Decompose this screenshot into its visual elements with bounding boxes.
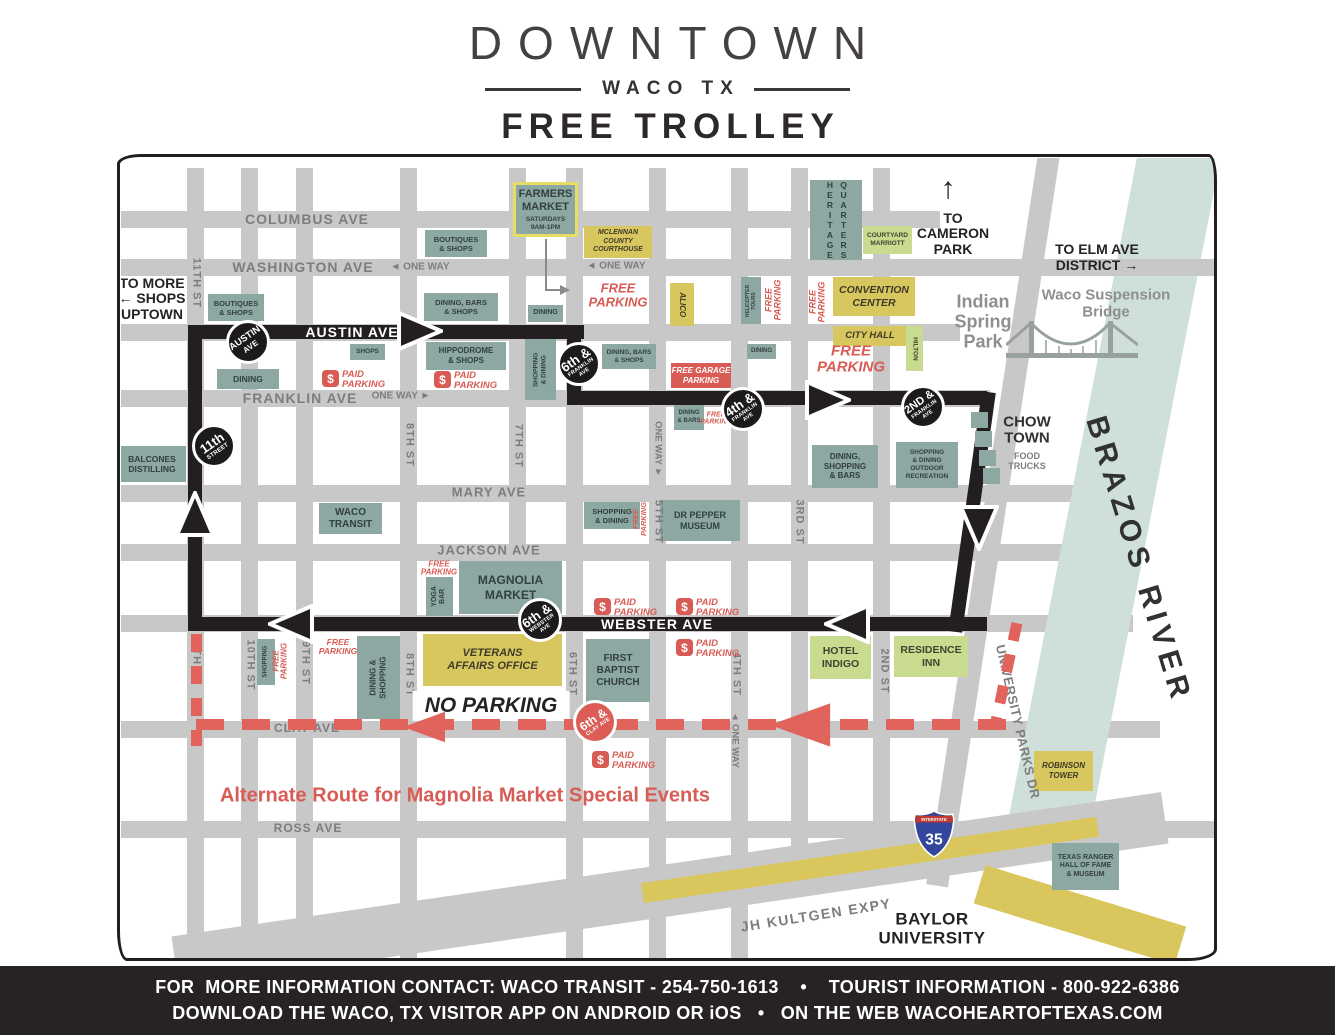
label-one-way: ◄ ONE WAY [587,260,646,272]
paid-parking-label: PAID PARKING [614,598,657,618]
chow-town-square [983,468,1000,484]
label-one-way: ONE WAY ► [372,390,431,402]
paid-parking-marker: $PAID PARKING [322,370,385,390]
header: DOWNTOWN WACO TX FREE TROLLEY [0,20,1335,144]
poi-label: ALICO [677,292,687,317]
poi-waco-transit: WACO TRANSIT [319,503,382,534]
label-3rd-st: 3RD ST [793,499,806,544]
trolley-route-segment [188,325,202,631]
page: DOWNTOWN WACO TX FREE TROLLEY BOUTIQUES … [0,0,1335,1035]
paid-parking-label: PAID PARKING [696,639,739,659]
trolley-route-arrow [959,505,999,551]
poi-convention-center: CONVENTION CENTER [833,277,915,316]
svg-text:35: 35 [925,831,943,848]
poi-free-garage-parking: FREE GARAGE PARKING [671,363,731,388]
alternate-route-dashes [191,634,202,746]
label-free-parking: FREE PARKING [319,638,358,656]
poi-dining: DINING [747,344,776,359]
poi-label: TEXAS RANGER HALL OF FAME & MUSEUM [1058,854,1114,879]
page-title: DOWNTOWN [0,20,1335,66]
poi-label: FREE GARAGE PARKING [672,366,731,385]
paid-parking-label: PAID PARKING [612,751,655,771]
paid-parking-label: PAID PARKING [696,598,739,618]
label-jackson-ave: JACKSON AVE [437,544,540,559]
poi-label: DR PEPPER MUSEUM [674,510,726,532]
label-to-cameron-park: TO CAMERON PARK [917,211,989,257]
divider-right [754,88,850,91]
poi-farmers-market: FARMERS MARKETSATURDAYS 9AM-1PM [513,182,578,237]
dollar-icon: $ [676,598,693,615]
label-ross-ave: ROSS AVE [274,822,343,836]
label-baylor-university: BAYLOR UNIVERSITY [878,910,985,947]
label-alternate-route-for-magnolia-mar: Alternate Route for Magnolia Market Spec… [220,785,710,808]
poi-label: YOGA BAR [431,586,448,607]
chow-town-square [971,412,988,428]
poi-label: DINING, BARS & SHOPS [607,349,652,365]
poi-label: ROBINSON TOWER [1042,761,1085,780]
paid-parking-label: PAID PARKING [454,371,497,391]
label-one-way: ONE WAY ► [652,421,663,477]
trolley-route-arrow [397,311,443,351]
poi-residence-inn: RESIDENCE INN [894,636,968,677]
poi-shops: SHOPS [350,344,385,360]
poi-label: MCLENNAN COUNTY COURTHOUSE [593,229,643,254]
poi-label: COURTYARD MARRIOTT [867,232,908,248]
poi-dr-pepper-museum: DR PEPPER MUSEUM [660,500,740,541]
poi-label: RESIDENCE INN [900,644,961,669]
farmers-market-connector-arrow [560,285,570,295]
road [121,544,1090,561]
poi-label: HERITAGE QUARTERS [822,180,849,260]
label-9th-st: 9TH ST [299,641,312,685]
trolley-route-arrow [805,380,851,420]
label-webster-ave: WEBSTER AVE [601,616,713,632]
footer: FOR MORE INFORMATION CONTACT: WACO TRANS… [0,966,1335,1035]
poi-texas-ranger-hall-of-fame-museum: TEXAS RANGER HALL OF FAME & MUSEUM [1052,843,1119,890]
farmers-market-connector [545,289,560,291]
trolley-stop-6th-franklin-ave: 6th &FRANKLIN AVE [557,342,601,386]
subtitle: WACO TX [595,78,740,100]
label-washington-ave: WASHINGTON AVE [232,259,373,275]
poi-dining: DINING [528,305,563,322]
poi-label: DINING [533,309,558,317]
dollar-icon: $ [434,371,451,388]
label-8th-st: 8TH ST [403,423,416,467]
footer-line2: DOWNLOAD THE WACO, TX VISITOR APP ON AND… [172,1003,1163,1024]
poi-dining: DINING [217,369,279,389]
label-7th-st: 7TH ST [512,424,525,468]
road [241,168,258,959]
subtitle-row: WACO TX [0,78,1335,100]
poi-label: HELICOPTER TOURS [745,284,757,316]
trolley-stop-6th-webster-ave: 6th &WEBSTER AVE [518,598,562,642]
label-columbus-ave: COLUMBUS AVE [245,211,369,227]
poi-yoga-bar: YOGA BAR [426,577,453,616]
poi-label: MAGNOLIA MARKET [478,573,543,602]
label-free-parking: FREE PARKING [589,281,648,308]
poi-dining-bars-shops: DINING, BARS & SHOPS [602,344,656,369]
poi-label: DINING & BARS [677,410,700,424]
label-2nd-st: 2ND ST [878,648,891,693]
paid-parking-marker: $PAID PARKING [676,598,739,618]
trolley-route-arrow [824,604,870,644]
paid-parking-marker: $PAID PARKING [592,751,655,771]
poi-balcones-distilling: BALCONES DISTILLING [121,446,186,482]
label-one-way: ◄ ONE WAY [391,261,450,273]
label-free-parking: FREE PARKING [817,343,885,375]
poi-boutiques-shops: BOUTIQUES & SHOPS [208,294,264,321]
label-austin-ave: AUSTIN AVE [305,324,398,340]
trolley-stop-6th-clay-ave: 6th &CLAY AVE [573,700,617,744]
poi-label: DINING [751,348,772,355]
poi-shopping-dining-outdoor-recreati: SHOPPING & DINING OUTDOOR RECREATION [896,442,958,488]
label-free-parking: FREE PARKING [421,561,457,578]
alternate-route-arrow [401,710,447,744]
poi-label: HOTEL INDIGO [822,645,859,670]
suspension-bridge-icon [1006,315,1138,367]
paid-parking-label: PAID PARKING [342,370,385,390]
label-6th-st: 6TH ST [566,652,579,696]
poi-label: SHOPPING & DINING OUTDOOR RECREATION [906,449,949,480]
poi-label: BALCONES DISTILLING [128,454,176,474]
farmers-market-connector [545,239,547,291]
poi-shopping-dining: SHOPPING & DINING [525,339,556,400]
road [873,168,890,853]
poi-label: CONVENTION CENTER [839,284,909,309]
chow-town-square [975,431,992,447]
poi-heritage-quarters: HERITAGE QUARTERS [810,180,862,260]
poi-boutiques-shops: BOUTIQUES & SHOPS [425,230,487,257]
label-block: ↑ [941,172,956,207]
poi-label: FIRST BAPTIST CHURCH [596,653,639,689]
road [400,168,417,959]
dollar-icon: $ [594,598,611,615]
trolley-stop-austin-ave: AUSTINAVE [226,320,270,364]
poi-label: BOUTIQUES & SHOPS [214,299,259,317]
label-10th-st: 10TH ST [244,639,257,690]
poi-label: BOUTIQUES & SHOPS [434,235,479,253]
poi-label: DINING, SHOPPING & BARS [824,452,866,481]
product-title: FREE TROLLEY [0,109,1335,144]
poi-label: WACO TRANSIT [329,507,372,531]
trolley-stop-4th-franklin-ave: 4th &FRANKLIN AVE [721,387,765,431]
trolley-route-arrow [175,491,215,537]
poi-helicopter-tours: HELICOPTER TOURS [741,277,761,324]
poi-label: VETERANS AFFAIRS OFFICE [447,647,537,673]
trolley-map: BOUTIQUES & SHOPSBOUTIQUES & SHOPSDINING… [121,158,1215,959]
poi-label: SHOPPING & DINING [533,352,549,386]
poi-mclennan-county-courthouse: MCLENNAN COUNTY COURTHOUSE [584,226,652,258]
label-to-more-shops-uptown: TO MORE ← SHOPS UPTOWN [121,276,185,322]
poi-hilton: HILTON [906,326,923,371]
alternate-route-arrow [767,701,833,749]
label-franklin-ave: FRANKLIN AVE [243,390,358,406]
poi-label: HIPPODROME & SHOPS [439,346,494,365]
label-free-parking: FREE PARKING [809,282,828,323]
poi-robinson-tower: ROBINSON TOWER [1034,751,1093,791]
label-mary-ave: MARY AVE [452,486,526,501]
poi-alico: ALICO [670,283,694,326]
label-to-elm-ave-district: TO ELM AVE DISTRICT → [1055,241,1139,273]
footer-line1: FOR MORE INFORMATION CONTACT: WACO TRANS… [155,977,1180,998]
label-11th-st: 11TH ST [190,258,203,308]
svg-text:INTERSTATE: INTERSTATE [921,817,947,822]
poi-sublabel: SATURDAYS 9AM-1PM [526,216,565,231]
paid-parking-marker: $PAID PARKING [594,598,657,618]
poi-label: HILTON [911,337,919,361]
trolley-stop-2nd-franklin-ave: 2ND &FRANKLIN AVE [901,385,945,429]
label-free-parking: FREE PARKING [632,502,648,536]
dollar-icon: $ [592,751,609,768]
chow-town-square [979,450,996,466]
poi-dining-shopping: DINING & SHOPPING [357,636,400,719]
paid-parking-marker: $PAID PARKING [676,639,739,659]
label-free-parking: FREE PARKING [765,280,784,321]
poi-label: SHOPPING & DINING [592,507,632,525]
dollar-icon: $ [322,370,339,387]
label-food-trucks: FOOD TRUCKS [1008,452,1046,472]
label-free-parking: FREE PARKING [273,643,290,679]
interstate-35-shield: INTERSTATE35 [913,810,955,858]
paid-parking-marker: $PAID PARKING [434,371,497,391]
label-5th-st: 5TH ST [652,500,665,544]
poi-label: SHOPPING [262,646,269,678]
poi-label: FARMERS MARKET [519,188,573,214]
trolley-stop-11th-street: 11thSTREET [192,424,236,468]
label-chow-town: CHOW TOWN [1003,414,1051,446]
label-indian-spring-park: Indian Spring Park [955,292,1012,351]
divider-left [485,88,581,91]
dollar-icon: $ [676,639,693,656]
poi-label: DINING & SHOPPING [369,656,388,698]
poi-dining-shopping-bars: DINING, SHOPPING & BARS [812,445,878,488]
poi-label: CITY HALL [845,330,894,341]
poi-courtyard-marriott: COURTYARD MARRIOTT [863,226,912,254]
poi-label: SHOPS [356,348,379,356]
poi-first-baptist-church: FIRST BAPTIST CHURCH [586,639,650,702]
poi-label: DINING [233,374,263,384]
road [649,168,666,959]
trolley-route-arrow [268,604,314,644]
road [296,168,313,959]
